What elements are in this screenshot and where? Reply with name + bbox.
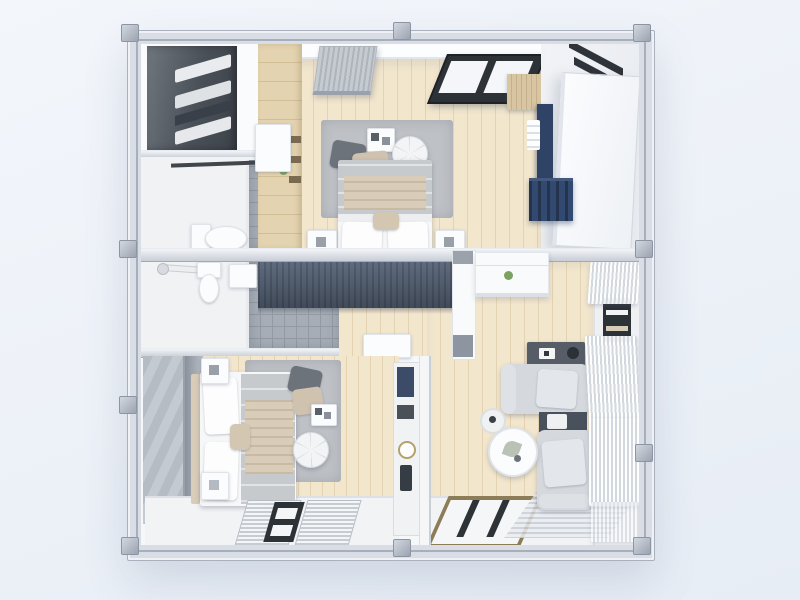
magazine-photo <box>315 408 322 415</box>
frame-mid-joint <box>119 240 137 258</box>
open-door-panel <box>553 72 639 250</box>
magazine-photo <box>382 137 390 145</box>
structural-pillar <box>452 250 476 360</box>
divider-wall <box>419 356 431 545</box>
nightstand-decor <box>209 365 219 375</box>
small-table-item <box>489 416 496 423</box>
window-bar <box>606 310 628 315</box>
frame-corner-joint <box>633 537 651 555</box>
remote-dot <box>544 351 549 356</box>
sofa-section-top <box>501 364 589 414</box>
white-desk <box>363 334 411 358</box>
mid-divider-beam <box>141 248 639 262</box>
counter-seam <box>476 265 548 266</box>
curtain-swag <box>585 336 639 422</box>
side-table-decor <box>547 414 567 429</box>
window-frame-gap <box>275 508 298 519</box>
wardrobe-cabinet <box>147 46 237 150</box>
sofa-section-right <box>537 430 593 510</box>
window-mullion <box>456 500 479 537</box>
window-pane <box>438 61 488 93</box>
shower-head <box>157 263 169 275</box>
bed-throw-blanket <box>344 176 426 210</box>
sofa-side-table <box>539 412 587 432</box>
curtain-swag <box>588 262 639 304</box>
shelf-bottle <box>400 465 412 491</box>
nightstand <box>201 472 229 500</box>
frame-mid-joint <box>393 539 411 557</box>
wall-sink <box>229 264 257 288</box>
shelf-clock <box>398 441 416 459</box>
bed-headboard <box>191 374 200 504</box>
air-conditioner <box>313 46 378 95</box>
console-knob <box>567 347 579 359</box>
bed-throw-blanket <box>245 400 293 474</box>
nightstand-decor <box>316 237 326 247</box>
coffee-table-small <box>480 408 506 434</box>
floorplan-render <box>0 0 800 600</box>
towel-stack <box>527 120 540 150</box>
sofa-cushion <box>536 369 579 410</box>
nightstand <box>201 358 229 384</box>
house-interior <box>141 44 639 545</box>
frame-corner-joint <box>121 537 139 555</box>
counter-plant <box>504 271 513 280</box>
console-remote <box>539 348 555 359</box>
bed-cushion-beige <box>230 424 250 450</box>
shelf-navy-box <box>397 367 414 397</box>
frame-mid-joint <box>635 444 653 462</box>
window-bar <box>606 326 628 331</box>
window-frame-gap <box>270 525 293 536</box>
shelf-dark-item <box>397 405 414 419</box>
magazine <box>311 404 337 426</box>
nightstand-decor <box>444 237 454 247</box>
sofa-seat-end <box>539 494 589 508</box>
frame-corner-joint <box>121 24 139 42</box>
sofa-armrest <box>501 364 516 414</box>
window-mullion <box>486 500 509 537</box>
pillar-cap-top <box>453 251 473 264</box>
curtain-swag <box>589 418 639 506</box>
bed-cushion-beige <box>373 212 399 230</box>
frame-corner-joint <box>633 24 651 42</box>
frame-mid-joint <box>635 240 653 258</box>
towel-shelf <box>175 54 231 83</box>
kitchen-counter <box>475 252 549 297</box>
magazine <box>367 128 395 152</box>
coffee-table-large <box>488 427 538 477</box>
divider-shelf-unit <box>393 362 421 536</box>
frame-mid-joint <box>119 396 137 414</box>
shelf-notch <box>289 176 301 183</box>
navy-shelf-unit <box>529 178 573 221</box>
slatted-wardrobe <box>258 262 452 308</box>
pillar-cap-bottom <box>453 335 473 357</box>
wall-cabinet <box>255 124 291 172</box>
toilet-bowl <box>199 274 219 303</box>
magazine-photo <box>324 412 331 419</box>
bed-upper <box>338 160 432 260</box>
table-decor-dot <box>514 455 521 462</box>
nightstand-decor <box>209 480 219 490</box>
frame-mid-joint <box>393 22 411 40</box>
wardrobe-floor-shadow <box>258 308 452 314</box>
magazine-photo <box>371 133 379 141</box>
sofa-cushion <box>541 438 587 487</box>
curtain-swag <box>591 502 639 542</box>
round-pouf <box>293 432 329 468</box>
